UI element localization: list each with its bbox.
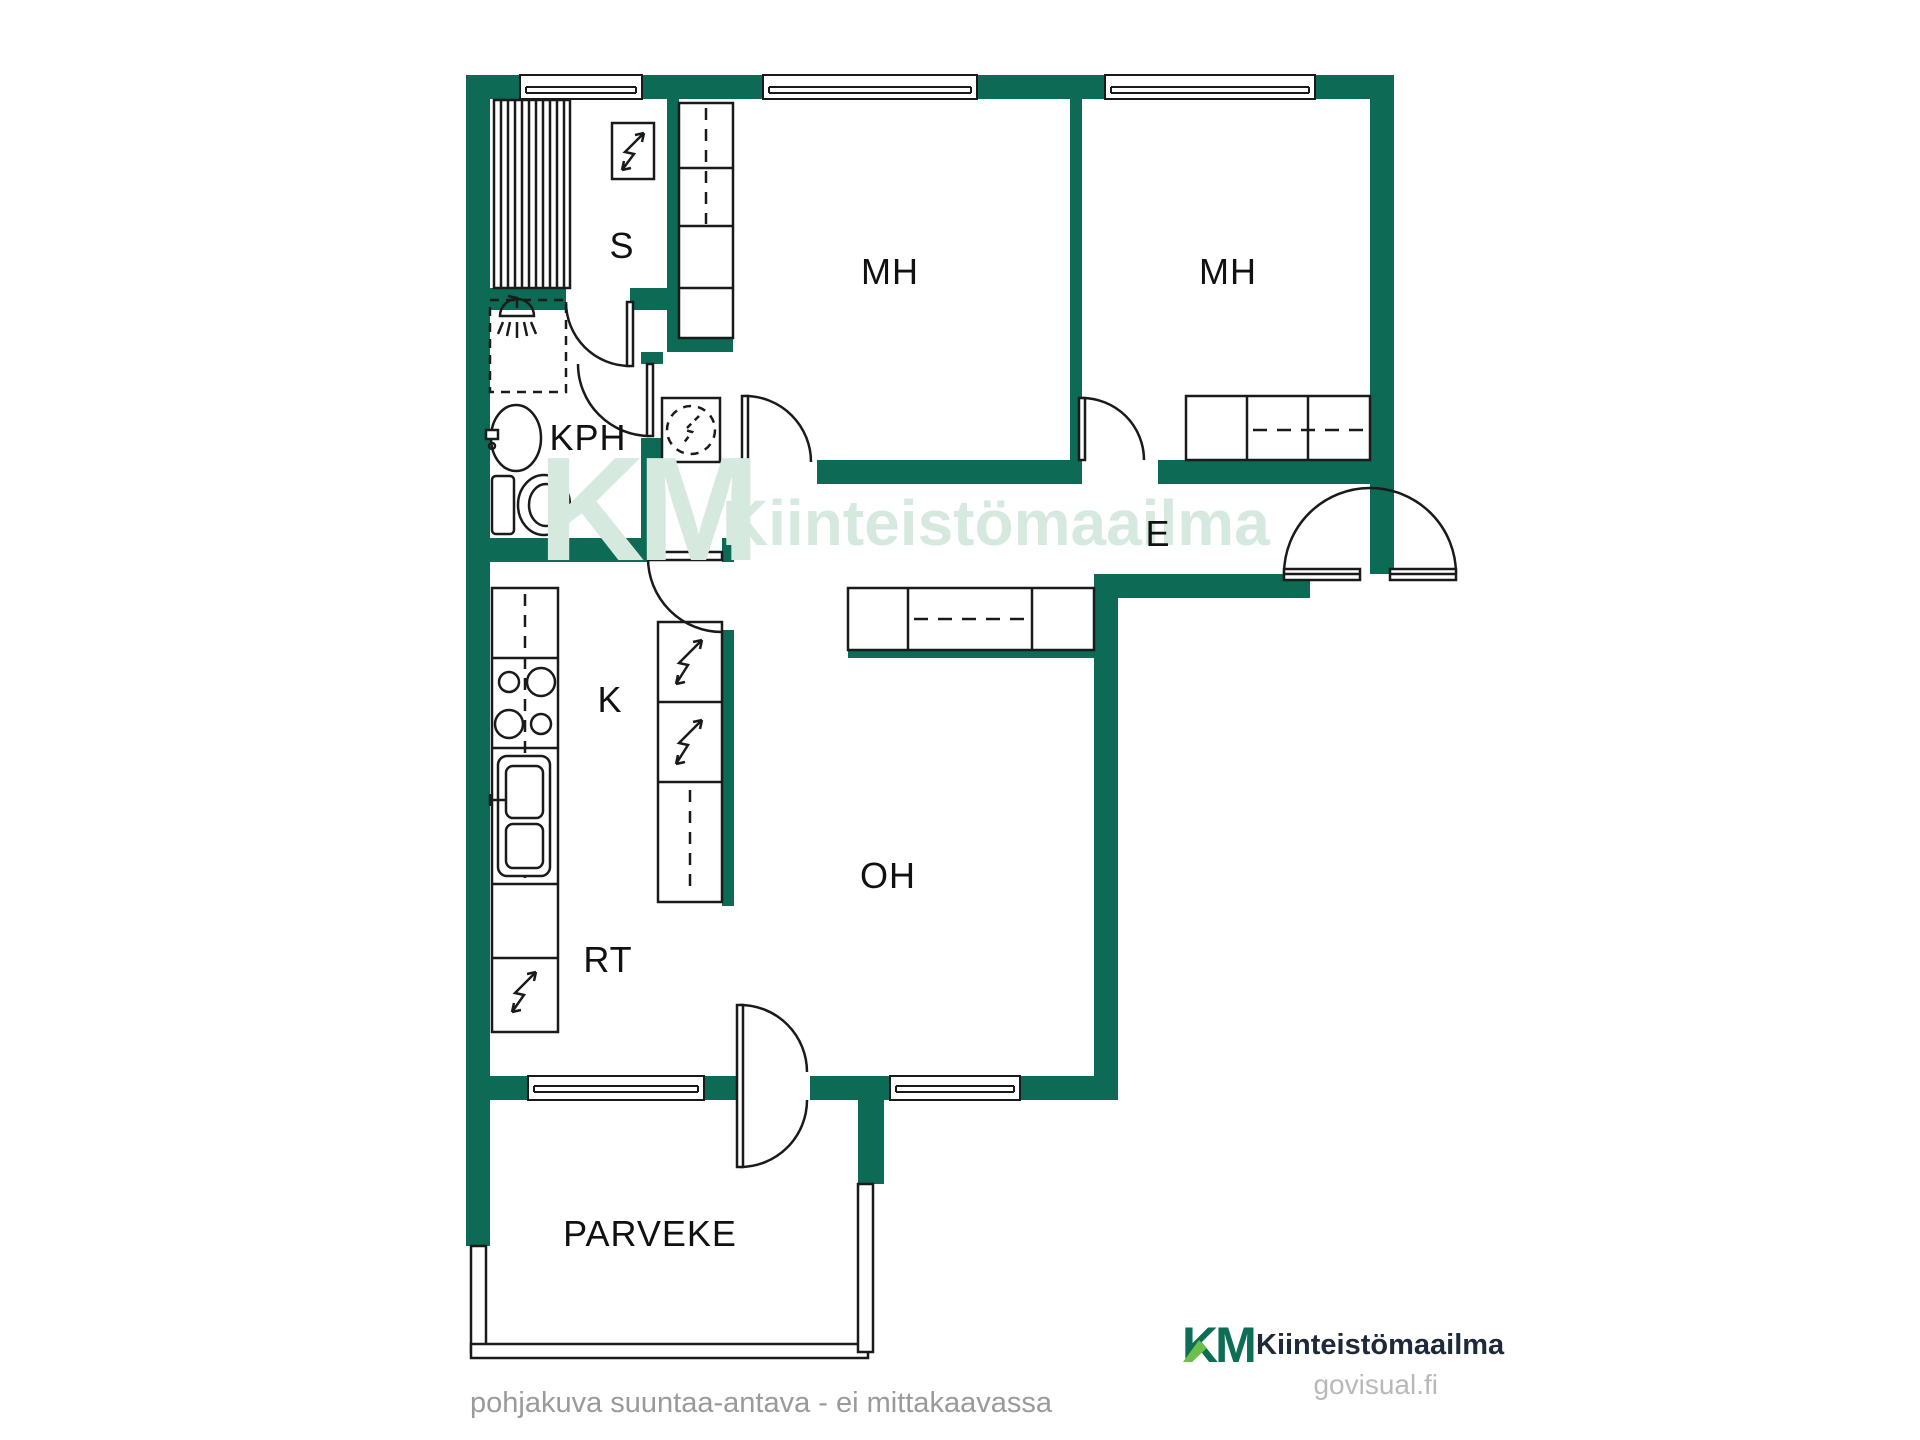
dishwasher-bolt-icon [512,972,536,1012]
logo-site-url[interactable]: govisual.fi [1313,1369,1438,1400]
hall-closet-top [679,103,733,338]
wall-oh-right [1094,598,1118,1100]
door-sauna-to-kph [566,302,633,366]
railing-left [471,1246,486,1352]
wall-sauna-bottom-right [630,288,679,310]
shower-icon [490,296,566,392]
wall-kph-right-top [641,352,663,364]
door-mh2 [1079,398,1144,460]
room-label-living: OH [860,855,916,896]
bathroom-sink-icon [486,405,541,471]
brand-logo: KM Kiinteistömaailma govisual.fi [1182,1317,1505,1400]
logo-km-monogram: KM [1182,1317,1254,1373]
door-mh1 [742,396,811,462]
wall-balcony-left [466,1100,490,1246]
room-label-entry: E [1145,513,1170,554]
wall-left [466,75,490,1100]
window-oh [890,1076,1020,1100]
floorplan-drawing: KM Kiinteistömaailma S KPH MH MH E K OH … [0,0,1920,1440]
window-mh2 [1105,75,1315,99]
floorplan-page: KM Kiinteistömaailma S KPH MH MH E K OH … [0,0,1920,1440]
fridge-bolt-icon [676,640,702,684]
balcony-railings [471,1184,873,1358]
wall-cap-under-cabinet [667,338,733,352]
wall-right-upper [1370,75,1394,574]
mh2-wardrobe [1186,396,1370,460]
wall-balcony-right-stub [858,1100,884,1184]
wall-e-bottom [1094,574,1310,598]
room-label-bathroom: KPH [549,417,626,458]
sauna-benches [494,100,570,288]
footer: pohjakuva suuntaa-antava - ei mittakaava… [470,1387,1053,1419]
kitchen-counter-left [490,588,558,1032]
room-label-bedroom1: MH [861,251,919,292]
balcony-door-opening [740,1076,810,1100]
hall-sideboard [848,588,1094,650]
window-sauna [520,75,642,99]
disclaimer-text: pohjakuva suuntaa-antava - ei mittakaava… [470,1387,1053,1419]
window-mh1 [763,75,977,99]
wall-mh2-bottom [1158,460,1370,484]
railing-right [858,1184,873,1352]
room-label-dining: RT [583,939,632,980]
window-rt [528,1076,704,1100]
wall-mh1-bottom [817,460,1070,484]
room-label-balcony: PARVEKE [563,1213,737,1254]
room-label-bedroom2: MH [1199,251,1257,292]
railing-bottom [471,1344,868,1358]
room-label-kitchen: K [597,679,622,720]
kitchen-sink-icon [490,756,550,876]
watermark-wordmark: Kiinteistömaailma [722,487,1270,559]
watermark: KM Kiinteistömaailma [538,427,1270,592]
room-label-sauna: S [609,225,634,266]
wall-k-side [722,630,734,906]
logo-wordmark: Kiinteistömaailma [1256,1329,1505,1361]
freezer-bolt-icon [676,720,702,764]
electrical-panel-icon [612,123,654,179]
fridge-freezer-column [658,622,722,902]
